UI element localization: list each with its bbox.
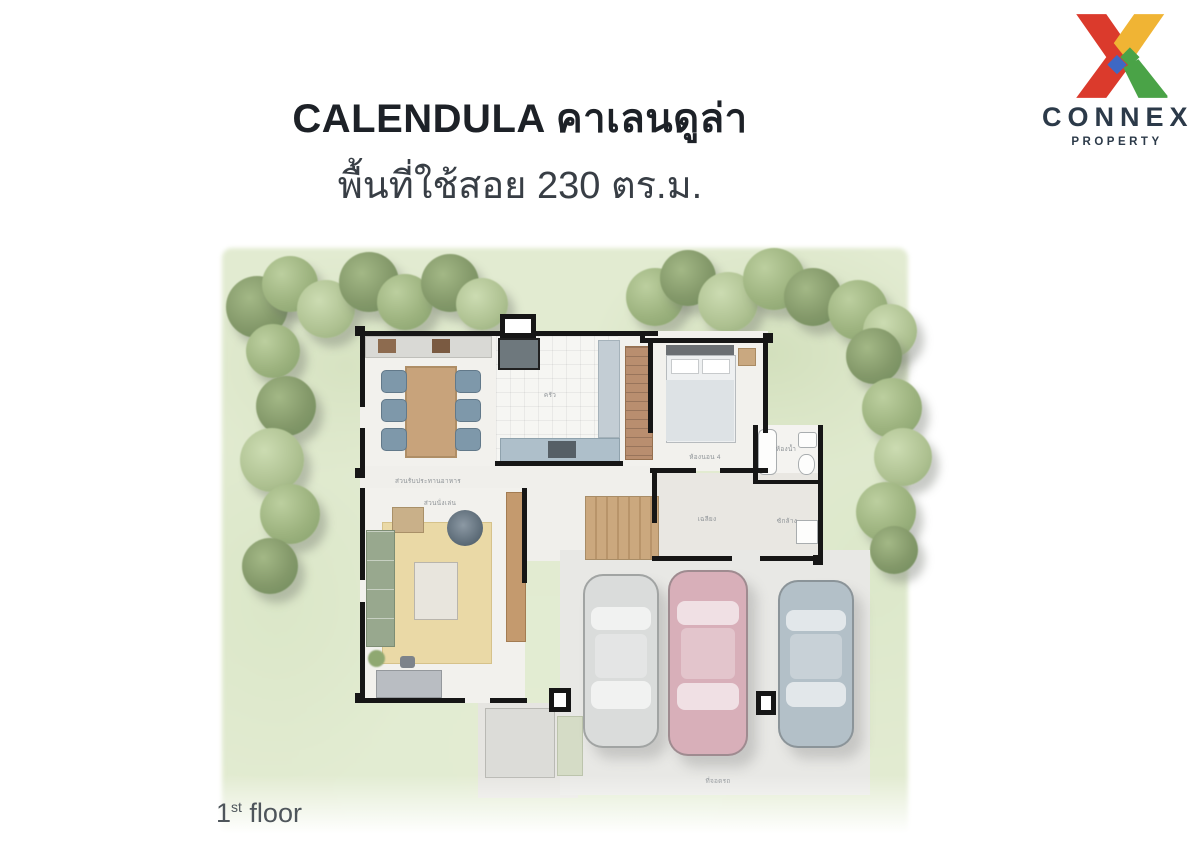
bottom-fade (200, 775, 935, 853)
tree-icon (240, 428, 304, 492)
room-label-bedroom: ห้องนอน 4 (659, 452, 751, 462)
car-gray (778, 580, 854, 748)
floor-plan-illustration: ส่วนรับประทานอาหาร ครัว ห้องนอน 4 ห้องน้… (200, 230, 935, 853)
kitchen-side-counter (598, 340, 620, 438)
wall-segment (720, 468, 768, 473)
dining-chair (455, 428, 481, 451)
wall-segment (753, 425, 758, 483)
sofa (366, 530, 395, 647)
room-label-bathroom: ห้องน้ำ (760, 444, 812, 454)
floor-label: 1st floor (216, 798, 302, 829)
wall-segment (360, 602, 365, 702)
wall-segment (818, 425, 823, 565)
wall-segment (495, 461, 623, 466)
dining-chair (381, 428, 407, 451)
wall-segment (360, 488, 365, 580)
kitchen-stove (548, 441, 576, 458)
armchair (392, 507, 424, 533)
column (549, 688, 571, 712)
wall-segment (522, 488, 527, 583)
wall-segment (640, 338, 768, 343)
wall-segment (360, 428, 365, 473)
room-label-laundry: ซักล้าง (758, 516, 815, 526)
room-label-dining: ส่วนรับประทานอาหาร (376, 476, 479, 486)
bed-headboard (666, 345, 734, 355)
dining-chair (381, 399, 407, 422)
floor-ordinal: st (231, 799, 242, 815)
room-label-porch: เฉลียง (666, 514, 749, 524)
bed-blanket (666, 380, 734, 441)
tree-icon (874, 428, 932, 486)
plant-icon (368, 650, 385, 667)
column (355, 693, 365, 703)
car-pink (668, 570, 748, 756)
dining-chair (381, 370, 407, 393)
wall-segment (360, 698, 465, 703)
toilet (798, 454, 815, 475)
page-title: CALENDULA คาเลนดูล่า (0, 86, 1040, 150)
room-label-kitchen: ครัว (513, 390, 587, 400)
coffee-table (414, 562, 458, 620)
bedside-table (738, 348, 756, 366)
dining-table (405, 366, 457, 458)
wall-segment (640, 331, 645, 343)
entry-planter (557, 716, 583, 776)
round-side-table (447, 510, 483, 546)
piano-desk (376, 670, 442, 698)
column (763, 333, 773, 343)
entry-steps (485, 708, 555, 778)
roof-protrusion (500, 314, 536, 338)
dining-chair (455, 370, 481, 393)
logo-tagline: PROPERTY (1042, 136, 1192, 148)
tree-icon (870, 526, 918, 574)
connex-x-icon (1063, 12, 1171, 100)
column (355, 468, 365, 478)
floor-word: floor (242, 798, 302, 828)
floor-number: 1 (216, 798, 231, 828)
wall-segment (652, 556, 732, 561)
bed-pillow (702, 359, 730, 374)
logo-name: CONNEX (1042, 102, 1192, 133)
dining-chair (455, 399, 481, 422)
column (756, 691, 776, 715)
tree-icon (246, 324, 300, 378)
stool (400, 656, 415, 668)
bed-pillow (671, 359, 699, 374)
tree-icon (846, 328, 902, 384)
tree-icon (242, 538, 298, 594)
room-label-living: ส่วนนั่งเล่น (385, 498, 495, 508)
car-white (583, 574, 659, 748)
kitchen-fridge (498, 338, 540, 370)
wall-segment (652, 473, 657, 523)
column (813, 555, 823, 565)
tree-icon (260, 484, 320, 544)
stairs (585, 496, 659, 560)
counter-appliance (432, 339, 450, 353)
wall-segment (648, 338, 653, 433)
column (355, 326, 365, 336)
connex-property-logo: CONNEX PROPERTY (1042, 12, 1192, 148)
wall-segment (753, 480, 821, 484)
wall-segment (490, 698, 527, 703)
wall-segment (360, 331, 365, 407)
tree-icon (256, 376, 316, 436)
wall-segment (763, 338, 768, 433)
usable-area-subtitle: พื้นที่ใช้สอย 230 ตร.ม. (0, 154, 1040, 215)
counter-appliance (378, 339, 396, 353)
